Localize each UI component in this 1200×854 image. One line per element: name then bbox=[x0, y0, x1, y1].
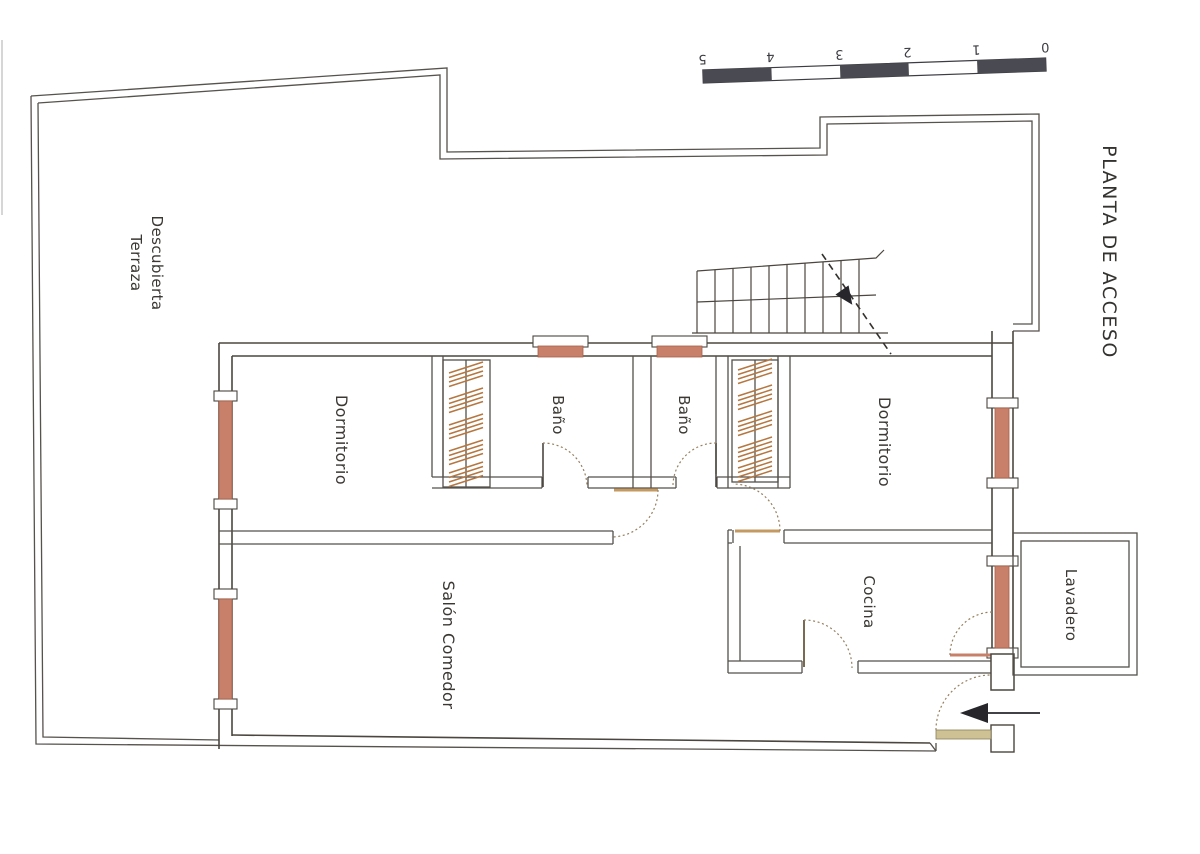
scanned-floor-plan-page: 0 1 2 3 4 5 Terraza Descubierta Dormitor… bbox=[0, 0, 1200, 854]
pillar bbox=[991, 654, 1014, 690]
stairs-direction-arrow bbox=[835, 285, 858, 309]
room-label-terraza-line1: Terraza bbox=[127, 234, 145, 292]
scale-tick-5: 5 bbox=[698, 51, 707, 66]
door-openings bbox=[542, 474, 858, 676]
entrance bbox=[936, 654, 1040, 752]
room-label-salon: Salón Comedor bbox=[439, 581, 458, 710]
room-label-bano-right: Baño bbox=[675, 395, 693, 435]
wardrobe-left bbox=[443, 360, 490, 487]
entry-arrow bbox=[960, 703, 1040, 723]
room-label-bano-left: Baño bbox=[549, 395, 567, 435]
scale-tick-4: 4 bbox=[766, 49, 775, 64]
room-labels: Terraza Descubierta Dormitorio Baño Baño… bbox=[127, 145, 1120, 709]
scale-tick-3: 3 bbox=[835, 46, 844, 61]
scale-tick-2: 2 bbox=[903, 44, 912, 59]
scale-bar: 0 1 2 3 4 5 bbox=[698, 39, 1050, 83]
wall-stub bbox=[991, 725, 1014, 752]
scale-tick-0: 0 bbox=[1041, 39, 1050, 54]
section-cut-line bbox=[822, 254, 891, 354]
stairs bbox=[692, 250, 891, 354]
entrance-threshold bbox=[936, 730, 991, 739]
floor-plan-canvas: 0 1 2 3 4 5 Terraza Descubierta Dormitor… bbox=[0, 0, 1200, 854]
room-label-cocina: Cocina bbox=[860, 575, 878, 628]
room-label-terraza-line2: Descubierta bbox=[148, 216, 166, 311]
room-label-dormitorio-left: Dormitorio bbox=[332, 395, 351, 485]
room-label-dormitorio-right: Dormitorio bbox=[875, 397, 894, 487]
plan-title: PLANTA DE ACCESO bbox=[1098, 145, 1120, 359]
room-label-lavadero: Lavadero bbox=[1062, 569, 1080, 642]
wardrobe-right bbox=[732, 359, 778, 482]
scale-tick-1: 1 bbox=[972, 41, 981, 56]
windows bbox=[214, 336, 1018, 709]
